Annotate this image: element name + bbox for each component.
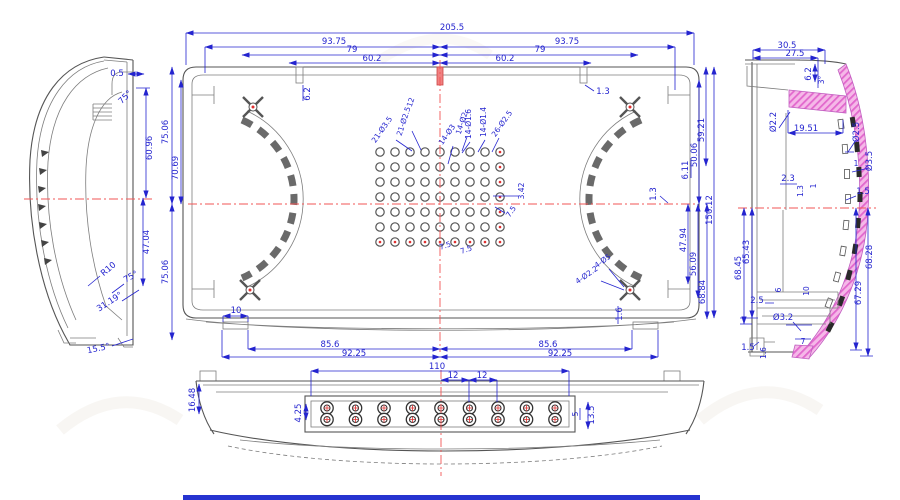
dim-7: 7 — [801, 337, 806, 346]
dim-5: 5 — [571, 411, 580, 416]
dim-d3-2: Ø3.2 — [773, 312, 793, 323]
left-side-view: 0.5 75° 60.96 47.04 R10 75° 31.19° 15.5° — [24, 57, 155, 356]
dim-19-51: 19.51 — [794, 124, 818, 134]
callout-7-5-a: 7.5 — [504, 204, 518, 219]
dim-75-06-top: 75.06 — [161, 120, 171, 144]
dim-47-94: 47.94 — [679, 228, 689, 252]
dim-6-2-r: 6.2 — [804, 67, 814, 81]
dim-70-69: 70.69 — [171, 156, 181, 180]
cad-drawing-page: 0.5 75° 60.96 47.04 R10 75° 31.19° 15.5° — [0, 0, 900, 500]
dim-79-right: 79 — [535, 45, 546, 55]
dim-12-a: 12 — [448, 371, 459, 381]
callout-14-d1-4: 14-Ø1.4 — [479, 107, 488, 137]
dim-75deg-top: 75° — [117, 89, 135, 107]
dim-68-45: 68.45 — [734, 256, 744, 280]
dim-1-5-a: 1.5 — [856, 187, 870, 197]
frame-bottom-edge — [183, 495, 700, 500]
dim-d2-2: Ø2.2 — [768, 112, 779, 132]
dim-1-3-right: 1.3 — [649, 187, 659, 201]
callout-26-d2-5: 26-Ø2.5 — [490, 108, 515, 138]
dim-1-3-slot: 1.3 — [596, 87, 610, 97]
top-view: 205.5 93.75 93.75 79 79 60.2 60.2 6.2 1.… — [161, 23, 715, 359]
dim-79-left: 79 — [347, 45, 358, 55]
drawing-canvas: 0.5 75° 60.96 47.04 R10 75° 31.19° 15.5° — [0, 0, 900, 500]
dim-93-75-right: 93.75 — [555, 37, 579, 47]
bottom-view: 110 12 12 16.48 4.25 13.5 5 — [188, 362, 704, 476]
dim-13-5: 13.5 — [587, 406, 597, 425]
dim-1-3-rv: 1.3 — [796, 185, 805, 197]
dim-r10: R10 — [99, 260, 118, 278]
dim-15-5: 15.5° — [86, 342, 111, 357]
dim-68-84: 68.84 — [698, 280, 708, 304]
vent-ticks — [38, 150, 52, 265]
dim-110: 110 — [429, 362, 445, 372]
dim-50-06: 50.06 — [690, 143, 700, 167]
dim-1-a: 1 — [854, 159, 859, 168]
tooling-cross-bottom-left — [240, 280, 260, 300]
dim-1-6-r: 1.6 — [759, 347, 768, 359]
dim-85-6-left: 85.6 — [321, 340, 340, 350]
dim-27-5: 27.5 — [786, 49, 805, 59]
dim-6-2-slot: 6.2 — [303, 87, 313, 101]
dim-59-21: 59.21 — [697, 118, 707, 142]
dim-6-r: 6 — [774, 287, 783, 292]
dim-60-2-left: 60.2 — [363, 54, 382, 64]
dim-12-b: 12 — [477, 371, 488, 381]
dim-d2-5: Ø2.5 — [851, 122, 862, 142]
dim-150-12: 150.12 — [705, 195, 715, 225]
callout-4-d2-2: 4-Ø2.2 — [574, 264, 600, 286]
section-foot — [792, 345, 813, 359]
dim-10: 10 — [231, 306, 242, 316]
callout-21-d2-5: 21-Ø2.5 — [395, 105, 413, 137]
section-flange — [789, 90, 846, 113]
callout-3-42: 3.42 — [517, 182, 526, 199]
dim-31-19: 31.19° — [95, 290, 124, 314]
dim-2-3: 2.3 — [781, 174, 795, 184]
dim-1-5-b: 1.5 — [741, 343, 755, 353]
dim-67-29: 67.29 — [854, 281, 864, 305]
dim-92-25-left: 92.25 — [342, 349, 366, 359]
right-section-view: 30.5 27.5 6.2 3° Ø2.2 19.51 Ø2.5 1 Ø3.5 … — [734, 41, 876, 359]
dim-56-09: 56.09 — [689, 252, 699, 276]
dim-6-11: 6.11 — [681, 161, 691, 180]
dim-60-96: 60.96 — [145, 136, 155, 160]
dim-68-28: 68.28 — [865, 245, 875, 269]
dim-2-5-r: 2.5 — [750, 296, 764, 306]
dim-16-48: 16.48 — [188, 388, 198, 412]
callout-12: 12 — [405, 96, 417, 108]
dim-1-b: 1 — [809, 183, 818, 188]
dim-205-5: 205.5 — [440, 23, 464, 33]
dim-75deg-bottom: 75° — [122, 269, 140, 285]
callout-7-5-c: 7.5 — [459, 243, 474, 256]
dim-1-6: 1.6 — [615, 307, 625, 321]
dim-3deg: 3° — [817, 75, 826, 84]
dim-60-2-right: 60.2 — [496, 54, 515, 64]
dim-93-75-left: 93.75 — [322, 37, 346, 47]
dim-d3-5: Ø3.5 — [864, 151, 875, 171]
dim-75-06-bottom: 75.06 — [161, 260, 171, 284]
dim-92-25-right: 92.25 — [548, 349, 572, 359]
dim-4-25: 4.25 — [294, 404, 304, 423]
dim-0-5: 0.5 — [110, 69, 124, 79]
dim-10-r: 10 — [802, 286, 811, 296]
dim-47-04: 47.04 — [142, 230, 152, 254]
callout-14-d1-6: 14-Ø1.6 — [464, 109, 473, 139]
callout-21-d3-5: 21-Ø3.5 — [370, 114, 395, 144]
